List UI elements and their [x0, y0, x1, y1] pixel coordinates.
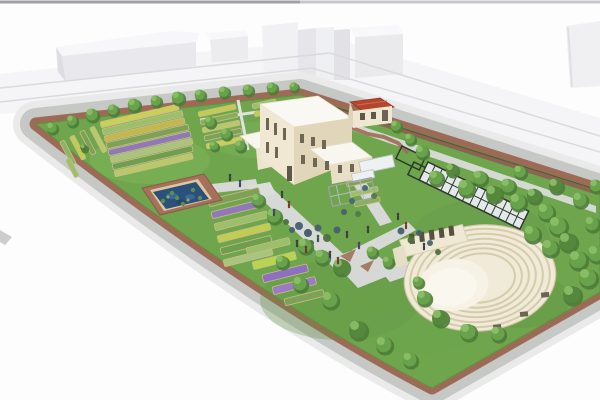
- tree-highlight: [128, 99, 134, 105]
- villa-annex-window: [338, 165, 342, 173]
- person-figure: [288, 201, 291, 204]
- person-figure: [358, 244, 360, 249]
- tree-highlight: [461, 324, 469, 332]
- person-figure: [273, 211, 275, 216]
- tree-highlight: [391, 121, 396, 126]
- villa-window: [325, 161, 329, 170]
- redhouse-window: [371, 112, 376, 119]
- shrub: [416, 230, 422, 236]
- person-figure: [405, 222, 408, 225]
- tree-highlight: [276, 256, 282, 262]
- garden-masterplan-rendering: [0, 0, 600, 400]
- tree-highlight: [459, 180, 467, 188]
- tree-highlight: [570, 251, 579, 260]
- person-figure: [317, 235, 320, 238]
- tree-highlight: [502, 179, 509, 186]
- person-figure: [281, 193, 283, 198]
- tree-highlight: [586, 217, 593, 224]
- tree-highlight: [210, 142, 215, 147]
- tree-highlight: [316, 250, 323, 257]
- person-figure: [288, 203, 290, 208]
- tree-highlight: [589, 246, 597, 254]
- redhouse-door: [382, 110, 388, 121]
- shrub: [355, 211, 361, 217]
- tree-highlight: [219, 87, 224, 92]
- lily-pad: [191, 188, 195, 192]
- shrub: [408, 237, 415, 244]
- villa-door: [287, 166, 292, 181]
- tree-highlight: [367, 247, 372, 252]
- lily-pad: [186, 198, 189, 201]
- tree-highlight: [528, 189, 535, 196]
- person-figure: [423, 243, 426, 246]
- tree-highlight: [151, 96, 156, 101]
- tree-highlight: [108, 105, 113, 110]
- massing-c-front: [355, 34, 403, 78]
- tree-highlight: [590, 180, 596, 186]
- person-figure: [239, 182, 241, 187]
- villa-window: [322, 140, 326, 149]
- tree-highlight: [81, 144, 85, 148]
- tree-highlight: [550, 179, 557, 186]
- tree-highlight: [487, 186, 495, 194]
- person-figure: [317, 237, 319, 242]
- amphitheater-window: [520, 311, 528, 317]
- person-figure: [239, 180, 242, 183]
- shrub: [427, 240, 433, 246]
- lily-pad: [161, 199, 165, 203]
- tree-highlight: [514, 166, 520, 172]
- person-figure: [273, 209, 276, 212]
- lily-pad: [166, 195, 169, 198]
- tree-highlight: [377, 337, 385, 345]
- shrub: [304, 229, 312, 237]
- tree-highlight: [564, 286, 573, 295]
- person-figure: [367, 226, 370, 229]
- tree-highlight: [416, 146, 422, 152]
- person-figure: [337, 257, 340, 260]
- tree-highlight: [195, 90, 200, 95]
- tree-highlight: [430, 171, 437, 178]
- tree-highlight: [205, 117, 210, 122]
- amphitheater-window: [541, 292, 549, 298]
- shrub: [435, 249, 441, 255]
- person-figure: [229, 174, 232, 177]
- person-figure: [305, 248, 307, 253]
- tree-highlight: [221, 129, 226, 134]
- shrub: [283, 219, 289, 225]
- amphitheater-door: [429, 230, 435, 240]
- villa-window: [311, 137, 315, 146]
- tree-highlight: [235, 141, 240, 146]
- tree-highlight: [511, 194, 519, 202]
- tree-highlight: [172, 92, 178, 98]
- rendering-frame: [0, 0, 600, 400]
- massing-b-front: [210, 36, 248, 62]
- villa-window: [301, 155, 305, 164]
- tree-highlight: [290, 83, 295, 88]
- villa-window: [300, 134, 304, 143]
- villa-window: [313, 158, 317, 167]
- tree-highlight: [383, 257, 388, 262]
- tree-highlight: [525, 226, 533, 234]
- shrub: [349, 198, 355, 204]
- shrub: [323, 234, 331, 242]
- villa-window: [275, 147, 278, 158]
- villa-window: [266, 142, 269, 153]
- person-figure: [305, 246, 308, 249]
- tree-highlight: [243, 85, 248, 90]
- tree-highlight: [433, 310, 441, 318]
- lily-pad: [175, 196, 179, 200]
- person-figure: [337, 259, 339, 264]
- lily-pad: [198, 196, 202, 200]
- person-figure: [281, 191, 284, 194]
- tree-highlight: [574, 193, 581, 200]
- person-figure: [397, 213, 400, 216]
- tree-highlight: [560, 233, 569, 242]
- tree-highlight: [474, 171, 481, 178]
- amphitheater-door: [439, 228, 445, 238]
- tree-highlight: [446, 164, 452, 170]
- tree-highlight: [86, 109, 92, 115]
- villa-window: [274, 123, 277, 135]
- water-highlight: [185, 195, 195, 200]
- tree-highlight: [323, 292, 331, 300]
- tree-highlight: [252, 194, 258, 200]
- tree-highlight: [418, 291, 425, 298]
- lily-pad: [181, 202, 185, 206]
- person-figure: [346, 231, 349, 234]
- tree-highlight: [267, 83, 272, 88]
- shrub: [295, 222, 303, 230]
- villa-annex-window: [350, 164, 354, 172]
- person-figure: [423, 245, 425, 250]
- tree-highlight: [492, 327, 499, 334]
- person-figure: [329, 251, 332, 254]
- person-figure: [229, 176, 231, 181]
- curb-sliver: [0, 230, 12, 245]
- shrub: [341, 209, 347, 215]
- tree-highlight: [550, 217, 559, 226]
- tree-highlight: [47, 123, 52, 128]
- person-figure: [329, 253, 331, 258]
- tree-highlight: [294, 277, 301, 284]
- tree-highlight: [413, 277, 418, 282]
- tree-highlight: [580, 269, 589, 278]
- person-figure: [358, 242, 361, 245]
- tree-highlight: [404, 353, 411, 360]
- person-figure: [367, 228, 369, 233]
- shrub: [289, 227, 295, 233]
- shrub: [315, 225, 322, 232]
- person-figure: [346, 233, 348, 238]
- tree-highlight: [299, 239, 306, 246]
- person-figure: [397, 215, 399, 220]
- tree-highlight: [543, 240, 551, 248]
- tree-highlight: [350, 321, 359, 330]
- redhouse-window: [360, 113, 365, 120]
- villa-window: [283, 128, 286, 140]
- tree-highlight: [405, 134, 410, 139]
- tree-highlight: [67, 116, 72, 121]
- amphitheater-door: [448, 225, 454, 235]
- shrub: [334, 227, 341, 234]
- shrub: [398, 228, 405, 235]
- villa-window: [266, 118, 269, 130]
- shrub: [362, 185, 368, 191]
- shrub: [371, 193, 377, 199]
- person-figure: [405, 224, 407, 229]
- person-figure: [296, 240, 299, 243]
- person-figure: [296, 242, 298, 247]
- lily-pad: [170, 191, 174, 195]
- tree-highlight: [539, 204, 547, 212]
